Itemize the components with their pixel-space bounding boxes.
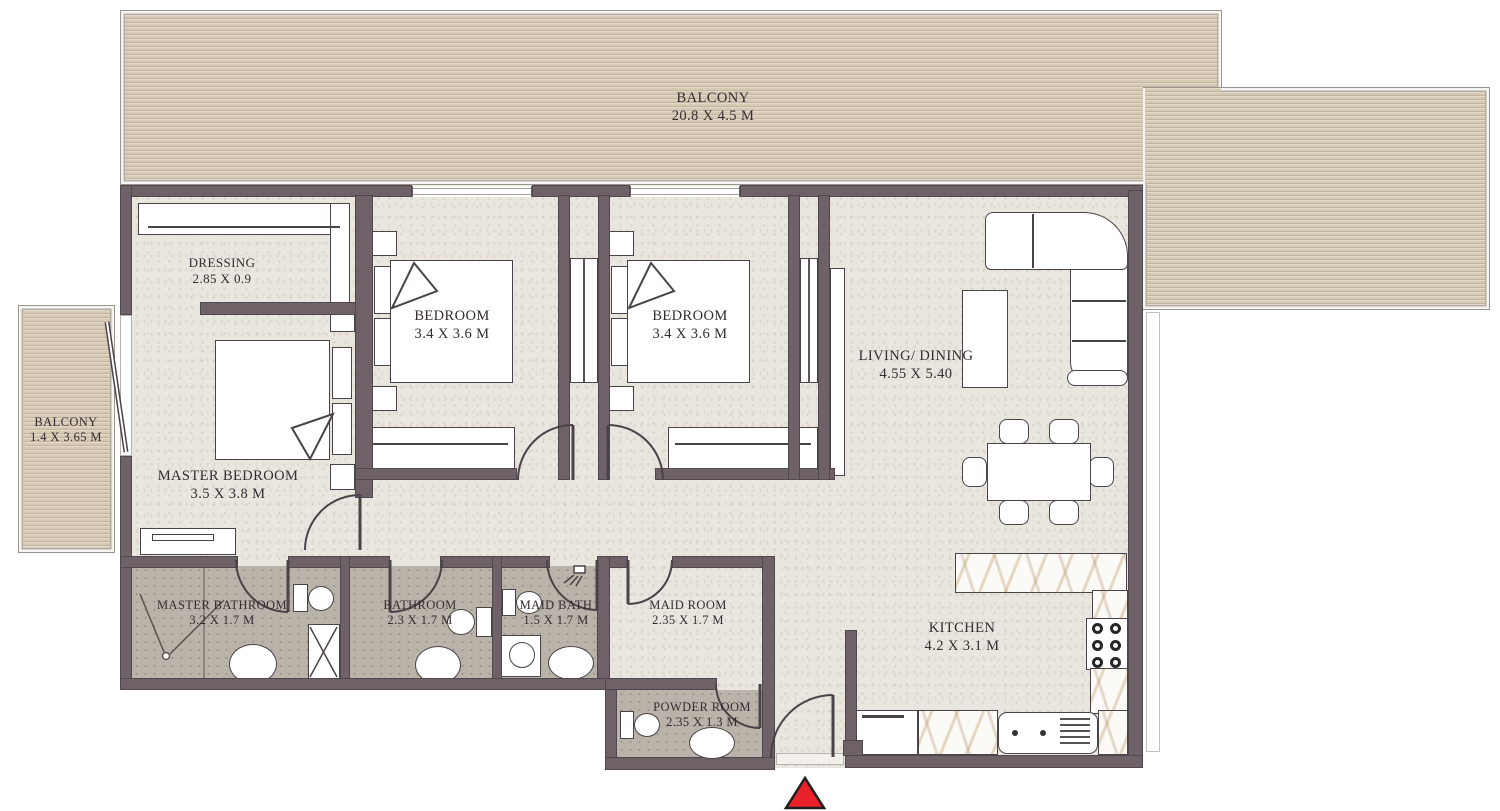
room-label-balcony-left: BALCONY 1.4 X 3.65 M bbox=[30, 415, 102, 446]
sink-drainboard bbox=[1060, 718, 1090, 748]
nightstand bbox=[371, 231, 397, 256]
wall bbox=[288, 556, 390, 568]
wardrobe-rail bbox=[372, 443, 508, 445]
room-label-balcony-top: BALCONY 20.8 X 4.5 M bbox=[672, 90, 755, 125]
wall bbox=[340, 556, 350, 690]
entrance-arrow bbox=[786, 778, 824, 808]
nightstand bbox=[608, 231, 634, 256]
stove-burner bbox=[1092, 623, 1103, 634]
wall-pier bbox=[843, 740, 863, 756]
room-name: POWDER ROOM bbox=[653, 700, 751, 715]
washbasin bbox=[548, 646, 594, 680]
room-name: BALCONY bbox=[672, 90, 755, 108]
wall bbox=[845, 755, 1143, 768]
room-name: BEDROOM bbox=[652, 308, 727, 326]
sink-drain bbox=[1040, 730, 1046, 736]
washbasin bbox=[689, 727, 735, 759]
dining-chair bbox=[999, 500, 1029, 525]
room-dims: 1.4 X 3.65 M bbox=[30, 430, 102, 445]
nightstand bbox=[608, 386, 634, 411]
room-dims: 3.4 X 3.6 M bbox=[652, 326, 727, 344]
room-dims: 2.85 X 0.9 bbox=[189, 271, 256, 287]
room-dims: 2.3 X 1.7 M bbox=[383, 613, 456, 628]
wall bbox=[597, 556, 610, 690]
sofa-seam bbox=[1072, 340, 1126, 342]
room-dims: 3.5 X 3.8 M bbox=[158, 486, 299, 504]
wall bbox=[492, 556, 502, 690]
room-label-living-dining: LIVING/ DINING 4.55 X 5.40 bbox=[859, 348, 974, 383]
nightstand bbox=[371, 386, 397, 411]
floor-plan: BALCONY 20.8 X 4.5 M BALCONY 1.4 X 3.65 … bbox=[0, 0, 1500, 811]
bed bbox=[215, 340, 330, 460]
dresser bbox=[140, 528, 236, 555]
entry-threshold bbox=[776, 753, 844, 765]
wall bbox=[355, 195, 373, 498]
dresser-tray bbox=[152, 534, 214, 541]
wall bbox=[605, 757, 775, 770]
room-label-dressing: DRESSING 2.85 X 0.9 bbox=[189, 255, 256, 287]
room-name: BALCONY bbox=[30, 415, 102, 430]
room-dims: 4.2 X 3.1 M bbox=[925, 638, 1000, 656]
room-label-kitchen: KITCHEN 4.2 X 3.1 M bbox=[925, 620, 1000, 655]
room-label-master-bedroom: MASTER BEDROOM 3.5 X 3.8 M bbox=[158, 468, 299, 503]
room-name: LIVING/ DINING bbox=[859, 348, 974, 366]
kitchen-counter bbox=[918, 710, 998, 755]
wall bbox=[598, 195, 610, 480]
room-dims: 3.2 X 1.7 M bbox=[157, 613, 287, 628]
room-dims: 1.5 X 1.7 M bbox=[520, 613, 593, 628]
stove-burner bbox=[1110, 640, 1121, 651]
pillow bbox=[332, 403, 352, 455]
room-dims: 2.35 X 1.3 M bbox=[653, 715, 751, 730]
wall bbox=[120, 678, 610, 690]
room-label-master-bathroom: MASTER BATHROOM 3.2 X 1.7 M bbox=[157, 598, 287, 629]
pillow bbox=[332, 347, 352, 399]
wall bbox=[355, 468, 517, 480]
toilet-tank bbox=[476, 607, 492, 637]
cabinet-handle bbox=[862, 715, 904, 718]
room-dims: 4.55 X 5.40 bbox=[859, 366, 974, 384]
toilet-tank bbox=[293, 584, 308, 612]
toilet-tank bbox=[502, 589, 516, 616]
nightstand bbox=[330, 464, 355, 490]
room-label-powder-room: POWDER ROOM 2.35 X 1.3 M bbox=[653, 700, 751, 731]
dining-chair bbox=[1049, 419, 1079, 444]
room-label-bedroom-2: BEDROOM 3.4 X 3.6 M bbox=[652, 308, 727, 343]
room-label-bedroom-1: BEDROOM 3.4 X 3.6 M bbox=[414, 308, 489, 343]
sofa-section bbox=[1070, 252, 1128, 384]
room-dims: 20.8 X 4.5 M bbox=[672, 108, 755, 126]
room-label-maid-room: MAID ROOM 2.35 X 1.7 M bbox=[649, 598, 727, 629]
dining-chair bbox=[962, 457, 987, 487]
balcony-sliding-window bbox=[630, 186, 740, 197]
sofa-section bbox=[985, 212, 1128, 270]
kitchen-counter bbox=[1092, 590, 1128, 620]
wardrobe bbox=[365, 427, 515, 469]
room-name: KITCHEN bbox=[925, 620, 1000, 638]
dining-chair bbox=[1089, 457, 1114, 487]
wall bbox=[120, 185, 132, 315]
room-name: MASTER BATHROOM bbox=[157, 598, 287, 613]
wardrobe bbox=[330, 203, 350, 305]
kitchen-counter bbox=[1090, 668, 1128, 714]
wall bbox=[762, 556, 775, 770]
toilet-bowl bbox=[308, 586, 334, 611]
wall bbox=[120, 560, 132, 690]
wall bbox=[200, 302, 360, 315]
wall bbox=[605, 678, 717, 690]
built-in-closet bbox=[800, 258, 818, 383]
wardrobe-rail bbox=[148, 226, 340, 228]
room-name: BEDROOM bbox=[414, 308, 489, 326]
dining-chair bbox=[999, 419, 1029, 444]
wall bbox=[655, 468, 835, 480]
kitchen-counter bbox=[955, 553, 1127, 593]
wall bbox=[1128, 190, 1143, 768]
wardrobe bbox=[138, 203, 350, 235]
exterior-ledge bbox=[1146, 312, 1160, 752]
wall bbox=[845, 630, 857, 755]
sofa-seam bbox=[1032, 214, 1034, 268]
room-name: DRESSING bbox=[189, 255, 256, 271]
stove-burner bbox=[1092, 657, 1103, 668]
sofa-armrest bbox=[1067, 370, 1128, 386]
room-name: MAID ROOM bbox=[649, 598, 727, 613]
balcony-corner-patch bbox=[1145, 88, 1221, 184]
balcony-sliding-window bbox=[412, 186, 532, 197]
room-name: BATHROOM bbox=[383, 598, 456, 613]
stove-burner bbox=[1092, 640, 1103, 651]
room-dims: 2.35 X 1.7 M bbox=[649, 613, 727, 628]
wall bbox=[558, 195, 570, 480]
kitchen-counter bbox=[1098, 710, 1128, 755]
washing-machine-drum bbox=[509, 642, 535, 668]
built-in-closet bbox=[570, 258, 598, 383]
service-duct bbox=[308, 624, 340, 680]
dining-table bbox=[987, 443, 1091, 501]
room-label-bathroom: BATHROOM 2.3 X 1.7 M bbox=[383, 598, 456, 629]
stove-burner bbox=[1110, 657, 1121, 668]
room-dims: 3.4 X 3.6 M bbox=[414, 326, 489, 344]
balcony-door-jamb bbox=[120, 315, 132, 456]
sofa-seam bbox=[1072, 300, 1126, 302]
wall bbox=[818, 195, 830, 480]
wall bbox=[120, 456, 132, 560]
room-label-maid-bath: MAID BATH 1.5 X 1.7 M bbox=[520, 598, 593, 629]
toilet-tank bbox=[620, 711, 634, 739]
tv-console bbox=[830, 268, 845, 476]
wall bbox=[740, 185, 1143, 197]
wall bbox=[672, 556, 775, 568]
dining-chair bbox=[1049, 500, 1079, 525]
wall bbox=[532, 185, 630, 197]
stove-burner bbox=[1110, 623, 1121, 634]
room-name: MAID BATH bbox=[520, 598, 593, 613]
wall bbox=[788, 195, 800, 480]
wall bbox=[120, 556, 238, 568]
room-name: MASTER BEDROOM bbox=[158, 468, 299, 486]
sink-drain bbox=[1012, 730, 1018, 736]
